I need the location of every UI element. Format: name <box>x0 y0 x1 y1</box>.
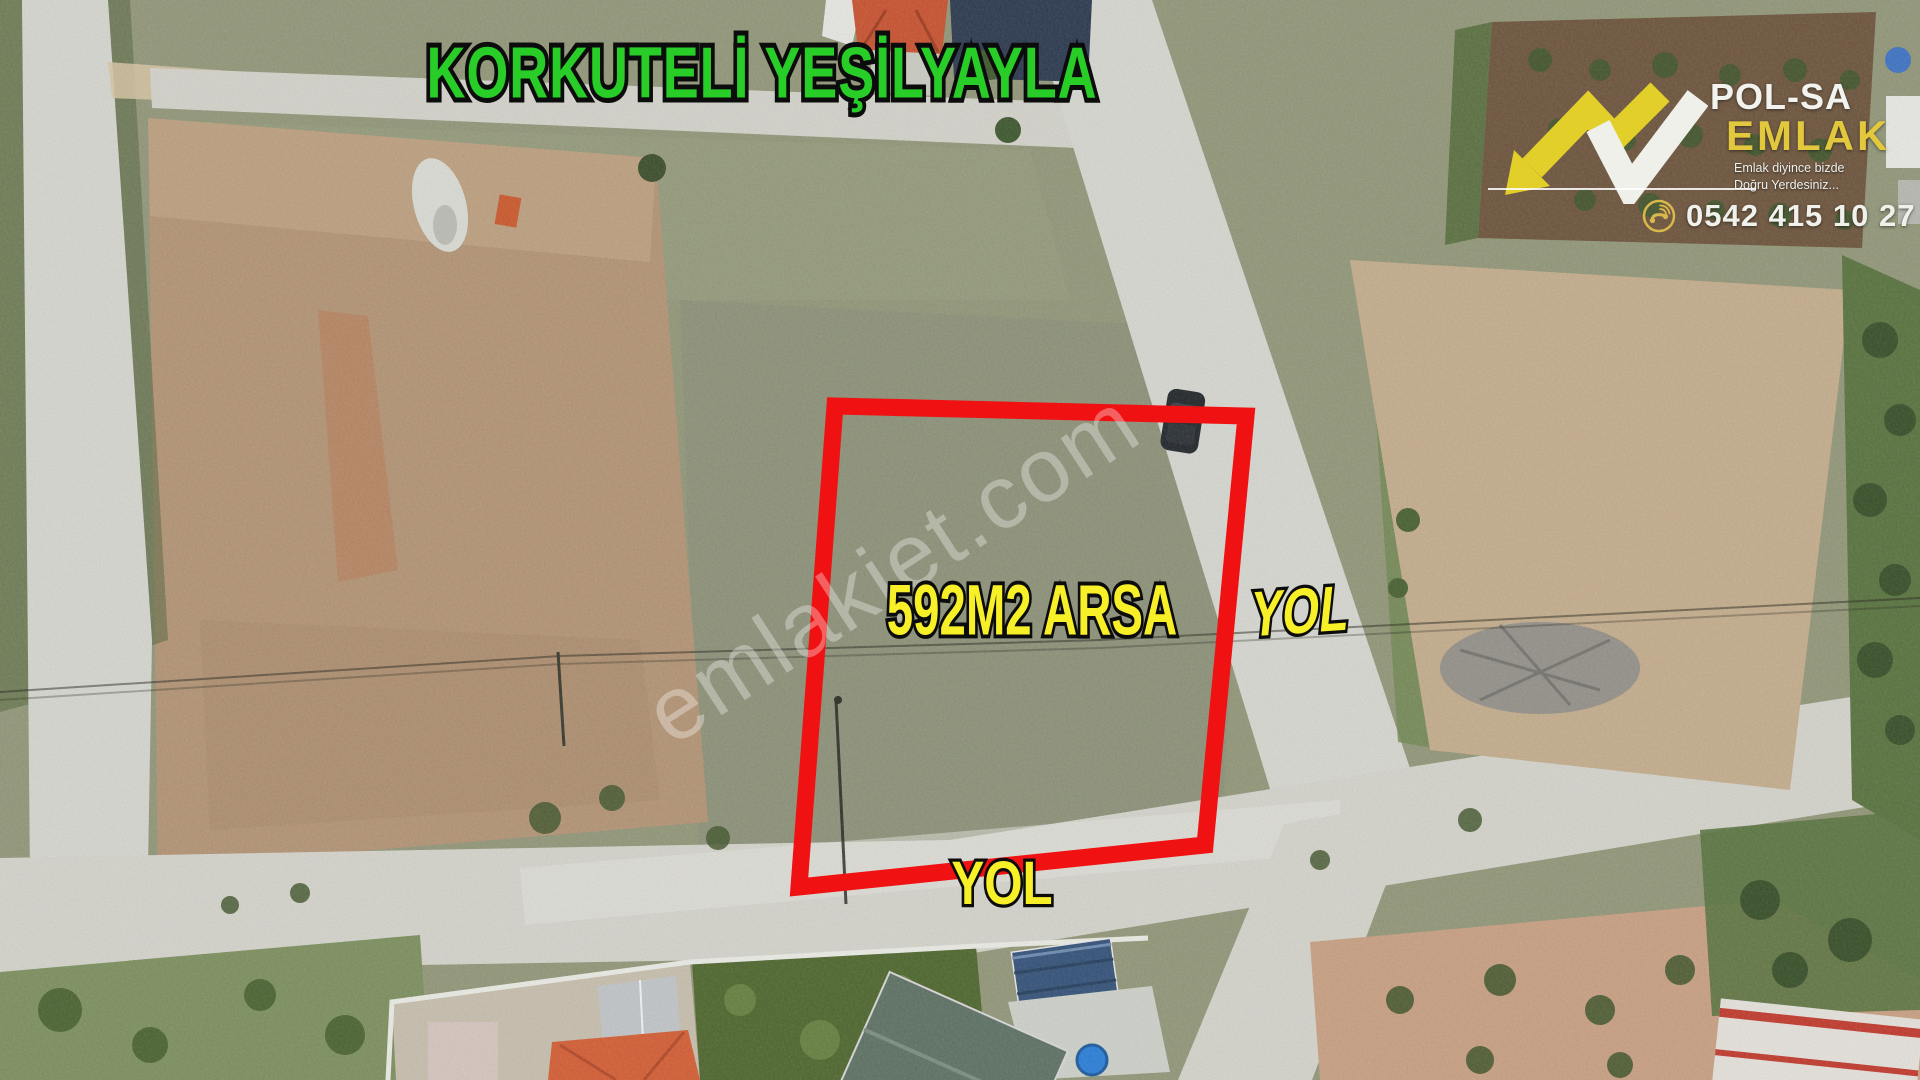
phone-number: 0542 415 10 27 <box>1686 198 1916 234</box>
logo-divider <box>1488 188 1756 190</box>
agency-phone: 0542 415 10 27 <box>1642 198 1916 234</box>
listing-photo: emlakjet.com KORKUTELİ YEŞİLYAYLA 592M2 … <box>0 0 1920 1080</box>
agency-name-2: EMLAK <box>1726 112 1890 160</box>
phone-icon <box>1642 199 1676 233</box>
location-title: KORKUTELİ YEŞİLYAYLA <box>426 38 1097 110</box>
road-label-right: YOL <box>1248 576 1352 647</box>
road-label-bottom: YOL <box>951 852 1052 914</box>
zigzag-check-icon <box>1502 80 1708 204</box>
plot-area-label: 592M2 ARSA <box>887 574 1177 646</box>
